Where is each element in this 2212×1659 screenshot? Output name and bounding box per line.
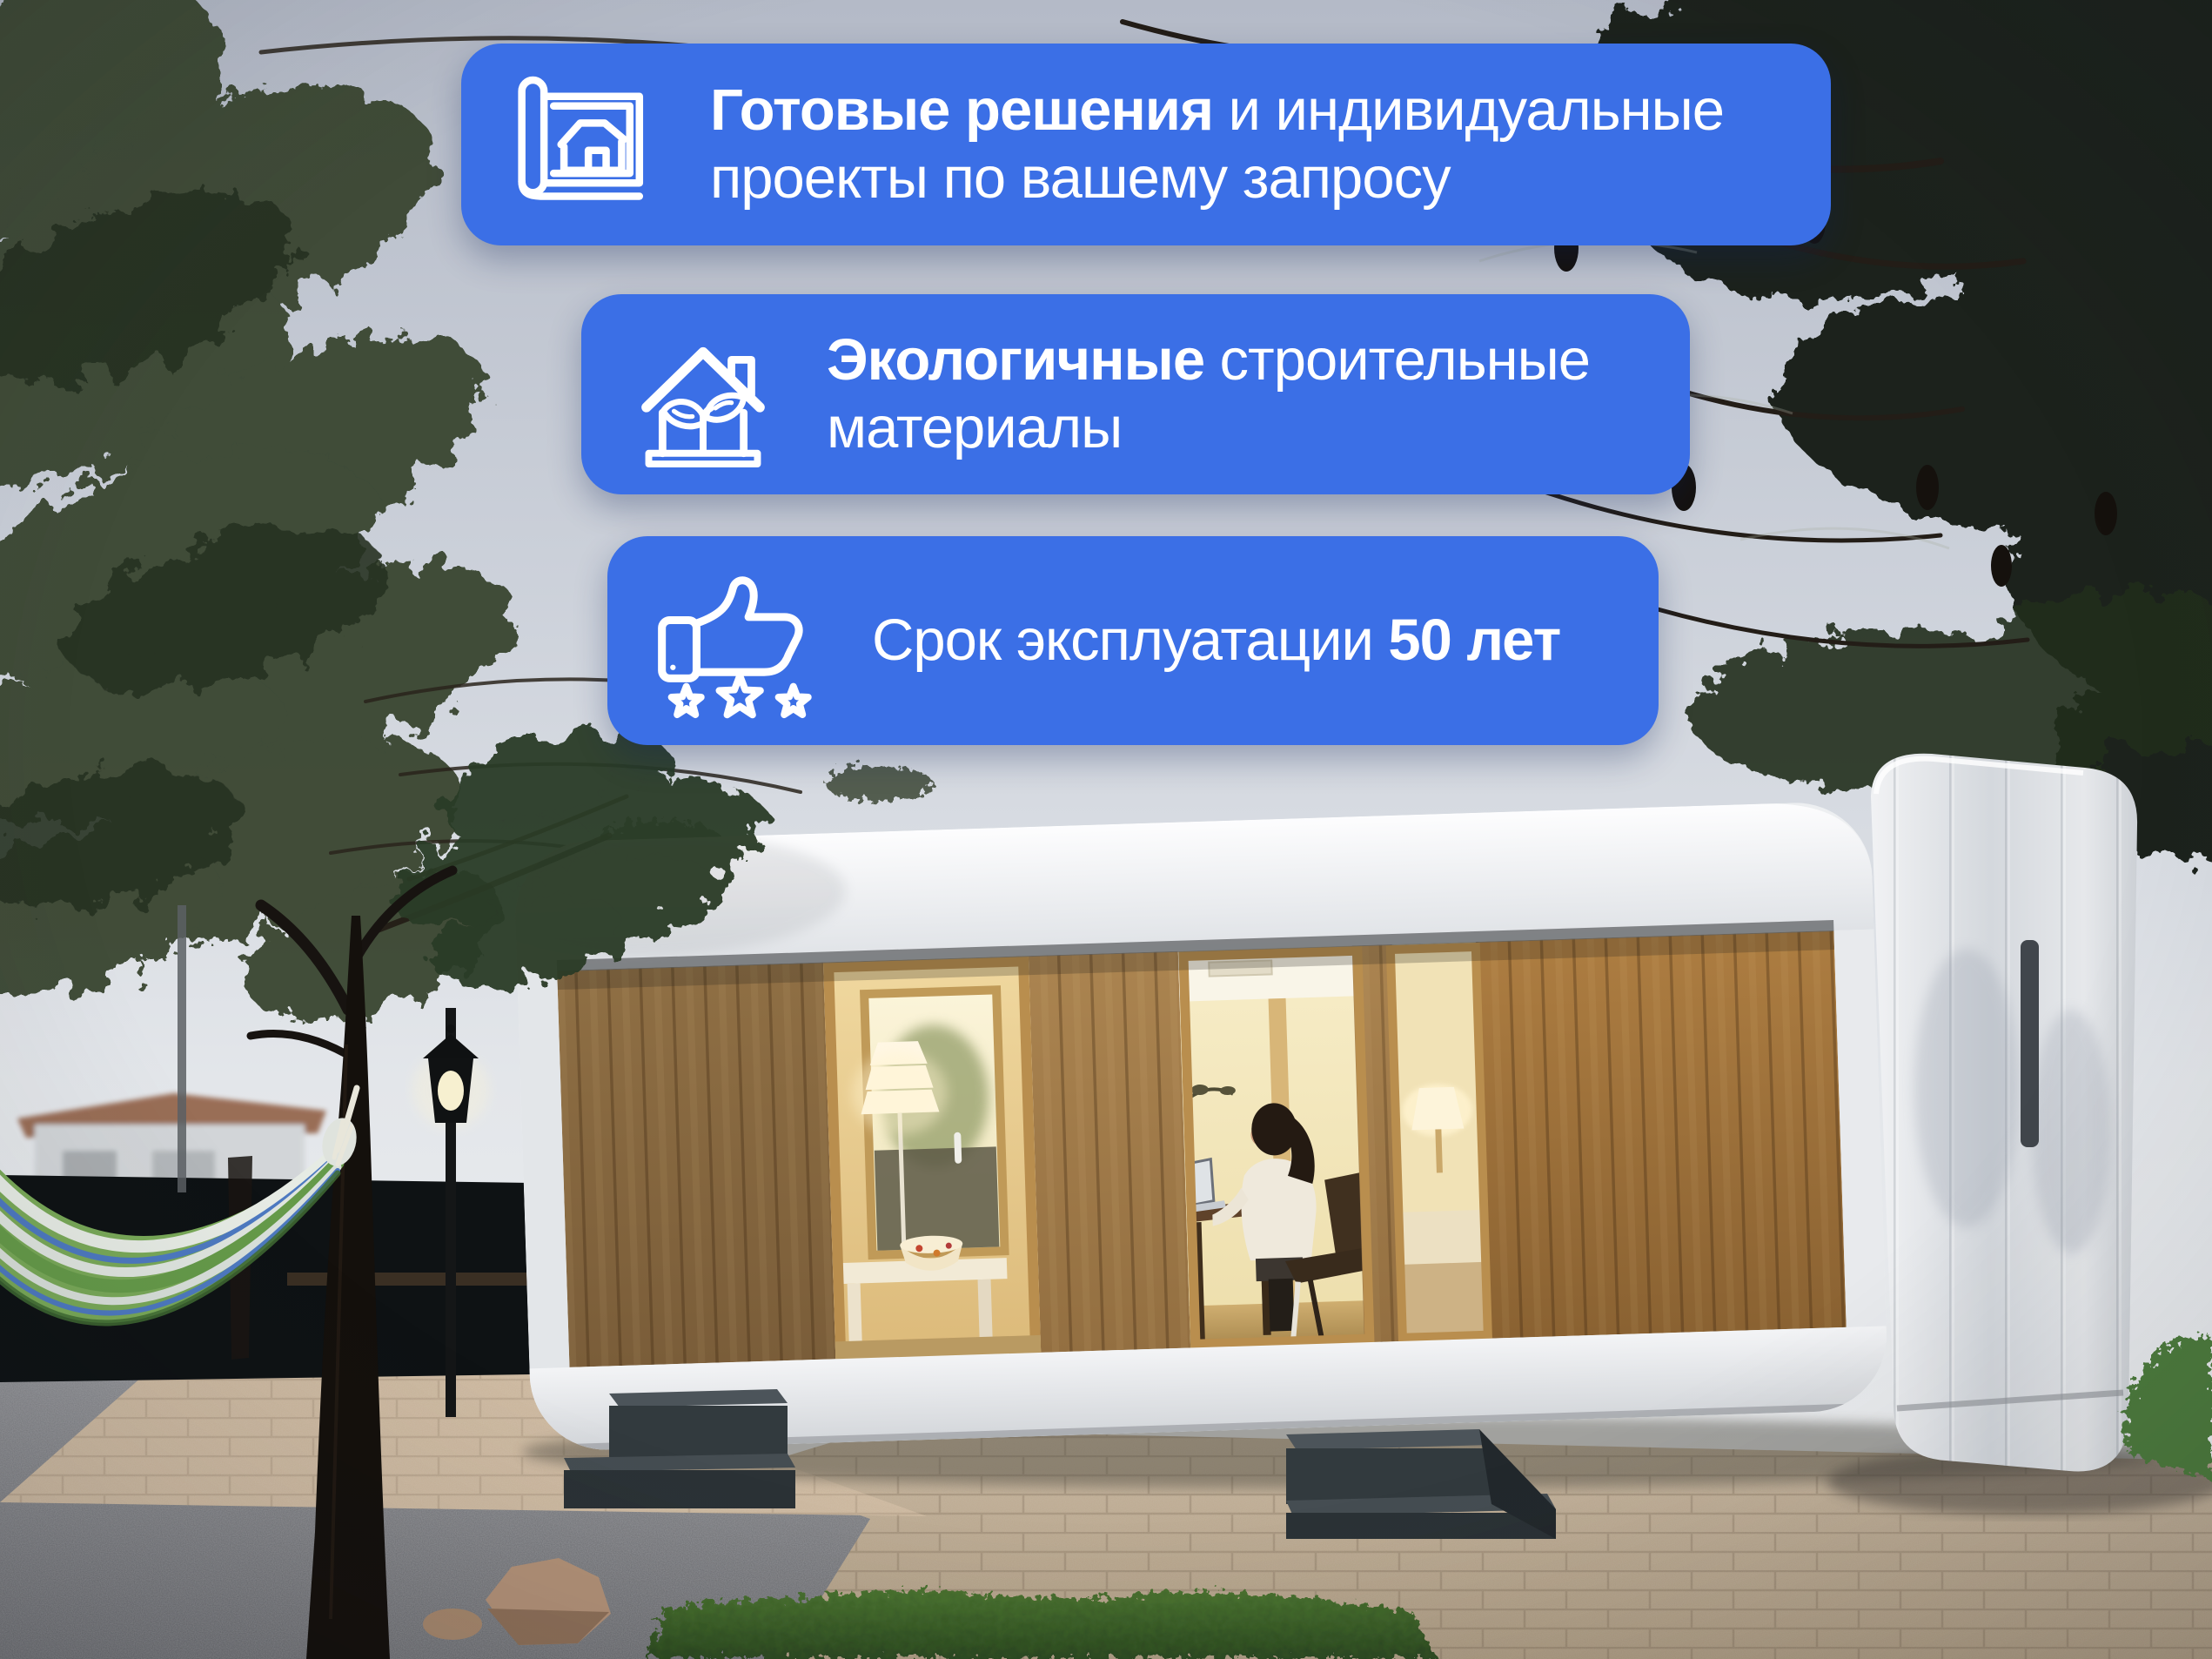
thumbs-up-stars-icon [651,557,832,724]
banner-bold-text: Готовые решения [710,77,1213,143]
banner-line2-text: материалы [827,395,1122,460]
banner-line2-text: проекты по вашему запросу [710,145,1451,211]
blueprint-house-icon [515,71,663,218]
banner-text: Экологичныестроительные материалы [827,326,1625,463]
banner-bold-text: 50 лет [1388,608,1560,673]
banner-regular-text: и индивидуальные [1229,77,1725,143]
promo-hero: Готовые решенияи индивидуальные проекты … [0,0,2212,1659]
banner-text: Готовые решенияи индивидуальные проекты … [710,77,1759,213]
banner-text: Срок эксплуатации50 лет [872,607,1595,675]
banner-regular-text: строительные [1220,327,1591,393]
vignette [0,0,2212,1659]
benefit-banner-projects: Готовые решенияи индивидуальные проекты … [461,44,1831,245]
benefit-banner-eco: Экологичныестроительные материалы [581,294,1690,494]
background-photo [0,0,2212,1659]
benefit-banner-lifespan: Срок эксплуатации50 лет [607,536,1659,745]
eco-house-plant-icon [627,318,780,471]
banner-bold-text: Экологичные [827,327,1204,393]
banner-regular-text: Срок эксплуатации [872,608,1373,673]
